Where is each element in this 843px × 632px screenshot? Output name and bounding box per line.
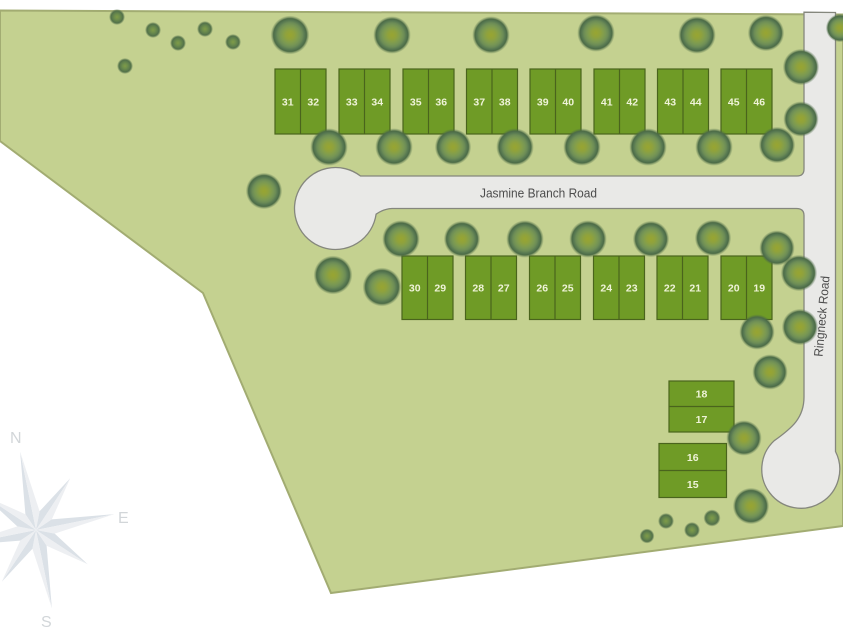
svg-text:26: 26 bbox=[536, 283, 548, 295]
svg-text:19: 19 bbox=[753, 283, 765, 295]
svg-text:24: 24 bbox=[600, 283, 612, 295]
svg-text:18: 18 bbox=[696, 389, 708, 401]
svg-text:32: 32 bbox=[307, 96, 319, 108]
svg-text:Jasmine Branch Road: Jasmine Branch Road bbox=[480, 187, 597, 201]
svg-text:46: 46 bbox=[753, 96, 765, 108]
svg-text:22: 22 bbox=[664, 283, 676, 295]
svg-text:N: N bbox=[10, 430, 22, 447]
svg-text:27: 27 bbox=[498, 283, 510, 295]
svg-text:20: 20 bbox=[728, 283, 740, 295]
svg-text:45: 45 bbox=[728, 96, 740, 108]
svg-text:25: 25 bbox=[562, 283, 574, 295]
svg-text:37: 37 bbox=[473, 96, 485, 108]
svg-text:34: 34 bbox=[371, 96, 383, 108]
svg-text:23: 23 bbox=[626, 283, 638, 295]
svg-text:16: 16 bbox=[687, 452, 699, 464]
svg-text:15: 15 bbox=[687, 479, 699, 491]
svg-text:31: 31 bbox=[282, 96, 294, 108]
svg-text:38: 38 bbox=[499, 96, 511, 108]
svg-text:S: S bbox=[41, 614, 52, 631]
svg-text:17: 17 bbox=[696, 414, 708, 426]
svg-text:43: 43 bbox=[664, 96, 676, 108]
svg-text:28: 28 bbox=[472, 283, 484, 295]
svg-text:40: 40 bbox=[562, 96, 574, 108]
svg-text:41: 41 bbox=[601, 96, 613, 108]
svg-text:44: 44 bbox=[690, 96, 702, 108]
svg-text:39: 39 bbox=[537, 96, 549, 108]
svg-text:35: 35 bbox=[410, 96, 422, 108]
svg-text:E: E bbox=[118, 510, 129, 527]
svg-text:29: 29 bbox=[434, 283, 446, 295]
svg-text:30: 30 bbox=[409, 283, 421, 295]
svg-text:42: 42 bbox=[626, 96, 638, 108]
svg-text:33: 33 bbox=[346, 96, 358, 108]
svg-text:36: 36 bbox=[435, 96, 447, 108]
svg-text:21: 21 bbox=[689, 283, 701, 295]
